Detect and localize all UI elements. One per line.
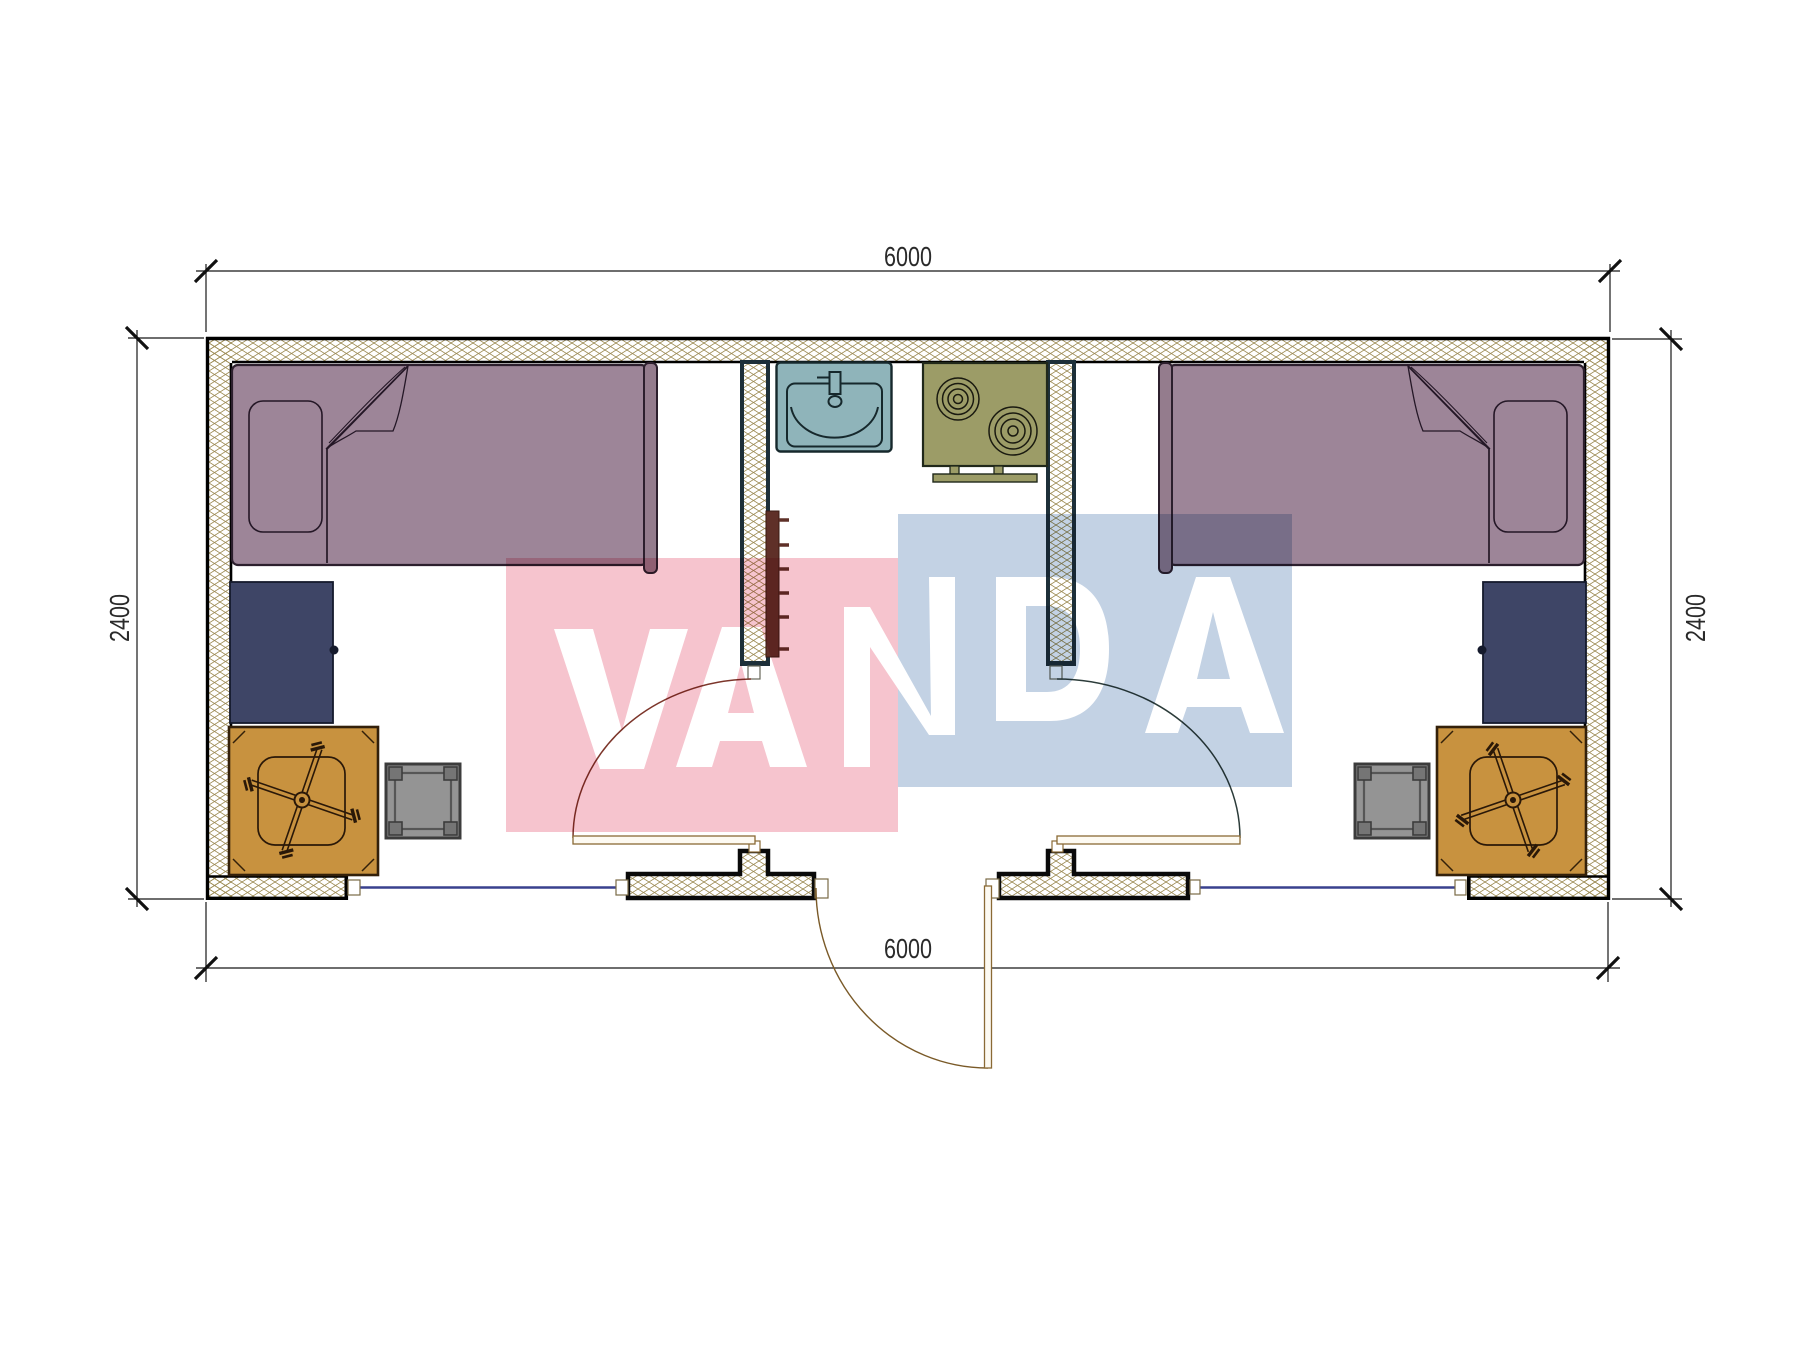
svg-text:6000: 6000 (884, 241, 932, 272)
svg-text:2400: 2400 (104, 594, 135, 642)
svg-text:6000: 6000 (884, 933, 932, 964)
svg-text:2400: 2400 (1680, 594, 1711, 642)
